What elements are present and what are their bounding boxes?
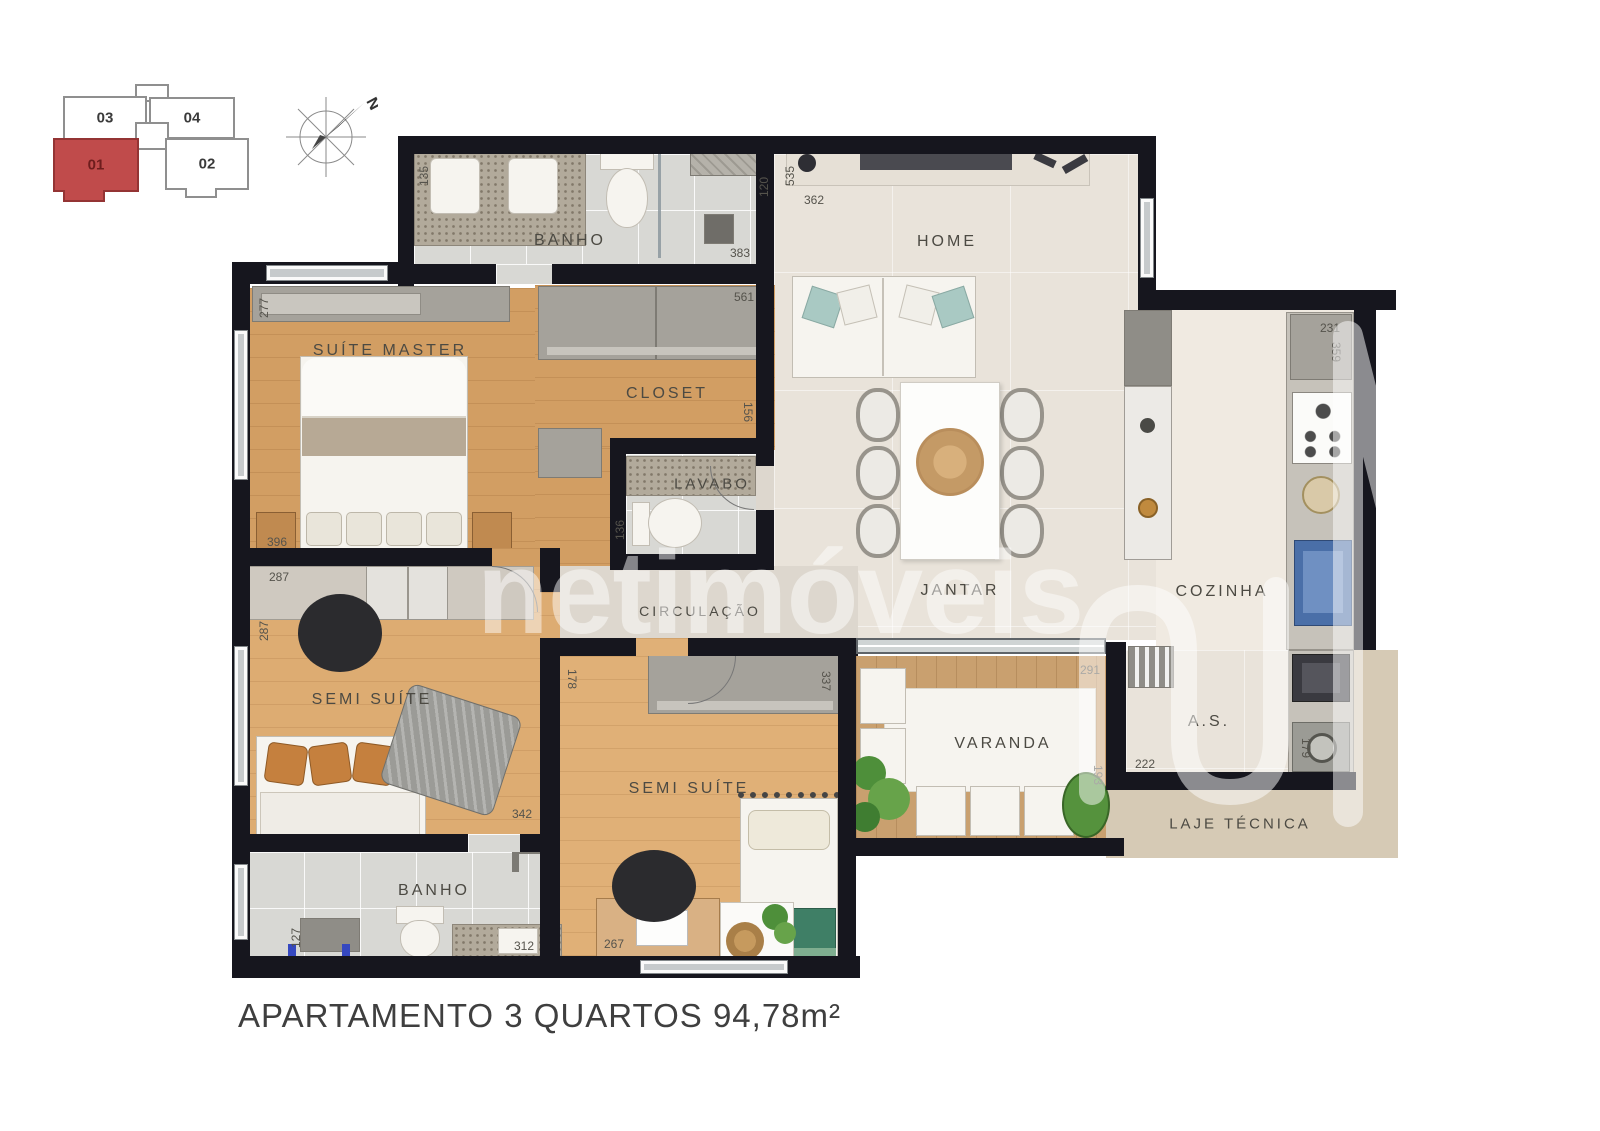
drawer-divider (407, 567, 409, 619)
dim-179: 179 (1299, 738, 1313, 758)
island-faucet-icon (1140, 418, 1155, 433)
dim-287: 287 (269, 570, 289, 584)
key-plan-unit-01-highlighted: 01 (53, 138, 139, 192)
dim-135: 135 (417, 166, 431, 186)
door-opening (492, 548, 540, 566)
cooktop-icon (1292, 392, 1352, 464)
dim-136: 136 (613, 520, 627, 540)
window (266, 265, 388, 281)
wardrobe-front (261, 293, 421, 315)
shower-glass (658, 154, 661, 258)
door-opening (468, 834, 520, 852)
window (234, 330, 248, 480)
closet-dresser (538, 428, 602, 478)
door-opening (756, 466, 774, 510)
room-label-suite-master: SUÍTE MASTER (313, 342, 467, 360)
headboard-decor (738, 788, 840, 798)
bath-cabinet (300, 918, 360, 952)
sofa-divider (882, 278, 884, 376)
pillow (748, 810, 830, 850)
pillow (306, 512, 342, 546)
dim-337: 337 (819, 671, 833, 691)
wardrobe-semi-suite-2 (648, 646, 840, 714)
floor-laje-tecnica-strip (1354, 650, 1398, 791)
room-label-lavabo: LAVABO (674, 476, 750, 493)
dining-chair (856, 504, 900, 558)
laundry-sink-icon (1292, 654, 1350, 702)
fruit-bowl-icon (1138, 498, 1158, 518)
table-rug-icon (916, 428, 984, 496)
wall (838, 838, 1124, 856)
unit-key-plan: 03 04 01 02 (50, 80, 262, 212)
dim-231: 231 (1320, 321, 1340, 335)
sliding-door-varanda (856, 638, 1106, 654)
dining-chair (1000, 388, 1044, 442)
room-label-circulacao: CIRCULAÇÃO (639, 603, 761, 619)
pillow (346, 512, 382, 546)
room-label-jantar: JANTAR (920, 582, 999, 600)
dining-chair (856, 446, 900, 500)
dim-362: 362 (804, 193, 824, 207)
wall (398, 136, 1156, 154)
room-label-closet: CLOSET (626, 385, 708, 403)
compass-rose-icon: N (278, 85, 378, 185)
dim-291: 291 (1080, 663, 1100, 677)
pillow (386, 512, 422, 546)
window (234, 864, 248, 940)
sink-icon (508, 158, 558, 214)
pillow (263, 741, 308, 786)
dim-359: 359 (1329, 342, 1343, 362)
door-opening (540, 592, 560, 638)
wall (1106, 642, 1126, 782)
wall (610, 438, 626, 570)
plant-icon (774, 922, 796, 944)
wall (838, 638, 856, 978)
room-label-banho-top: BANHO (534, 232, 606, 250)
shower-column-icon (704, 214, 734, 244)
wall (610, 438, 774, 454)
sink-icon (430, 158, 480, 214)
bench-cushion (916, 786, 966, 836)
room-label-semi-suite-1: SEMI SUÍTE (312, 691, 433, 709)
globe-decor-icon (798, 154, 816, 172)
dim-267: 267 (604, 937, 624, 951)
dim-342: 342 (512, 807, 532, 821)
dim-178: 178 (565, 669, 579, 689)
laundry-cabinet (1128, 646, 1174, 688)
master-wardrobe (252, 286, 510, 322)
bench-cushion (970, 786, 1020, 836)
dim-222: 222 (1135, 757, 1155, 771)
dim-120: 120 (757, 177, 771, 197)
dim-561: 561 (734, 290, 754, 304)
window (234, 646, 248, 786)
kitchen-island (1124, 386, 1172, 560)
bed-runner (302, 418, 466, 456)
compass-north-label: N (362, 95, 378, 113)
oven-tower (1124, 310, 1172, 386)
bench-cushion (860, 668, 906, 724)
window (640, 960, 788, 974)
kitchen-sink-icon (1294, 540, 1352, 626)
door-opening (496, 264, 552, 284)
bed-sheet (260, 792, 420, 840)
round-decor-icon (726, 922, 764, 960)
sink-basin (1303, 551, 1343, 613)
room-label-banho-bottom: BANHO (398, 882, 470, 900)
desk-chair (298, 594, 382, 672)
room-label-area-servico: A.S. (1188, 713, 1230, 731)
unit-01-label: 01 (88, 157, 105, 174)
decor-bowl-icon (1302, 476, 1340, 514)
toilet-icon (606, 168, 648, 228)
key-plan-block (185, 188, 217, 198)
key-plan-block (135, 122, 169, 150)
dim-312: 312 (514, 939, 534, 953)
room-label-home: HOME (917, 233, 977, 251)
dim-156: 156 (741, 402, 755, 422)
toilet-icon (648, 498, 702, 548)
room-label-varanda: VARANDA (954, 735, 1051, 753)
room-label-laje-tecnica: LAJE TÉCNICA (1169, 816, 1311, 833)
window (1140, 198, 1154, 278)
dim-127: 127 (289, 928, 303, 948)
dim-277: 277 (257, 298, 271, 318)
pillow (307, 741, 352, 786)
wardrobe-front (547, 347, 765, 355)
dining-chair (1000, 504, 1044, 558)
desk-drawers (366, 566, 448, 620)
wall (610, 554, 774, 570)
pillow (426, 512, 462, 546)
wall (560, 638, 858, 656)
wall (398, 264, 774, 284)
unit-03-label: 03 (97, 110, 114, 127)
plan-caption: APARTAMENTO 3 QUARTOS 94,78m² (238, 997, 841, 1035)
dim-535: 535 (783, 166, 797, 186)
desk-chair (612, 850, 696, 922)
door-opening (636, 638, 688, 656)
floor-plan-page: 03 04 01 02 N (0, 0, 1600, 1131)
dim-193: 193 (1091, 765, 1105, 785)
wall (1354, 290, 1376, 650)
wall (1106, 772, 1356, 790)
dim-396: 396 (267, 535, 287, 549)
dining-chair (856, 388, 900, 442)
room-label-cozinha: COZINHA (1176, 583, 1269, 601)
dim-287-v: 287 (257, 621, 271, 641)
key-plan-unit-02: 02 (165, 138, 249, 190)
unit-04-label: 04 (184, 110, 201, 127)
wardrobe-front (657, 701, 833, 710)
dim-383: 383 (730, 246, 750, 260)
toilet-icon (400, 920, 440, 958)
sink-basin (1302, 663, 1340, 693)
key-plan-block (63, 190, 105, 202)
room-label-semi-suite-2: SEMI SUÍTE (629, 780, 750, 798)
unit-02-label: 02 (199, 156, 216, 173)
dining-chair (1000, 446, 1044, 500)
bed-duvet (302, 358, 466, 418)
